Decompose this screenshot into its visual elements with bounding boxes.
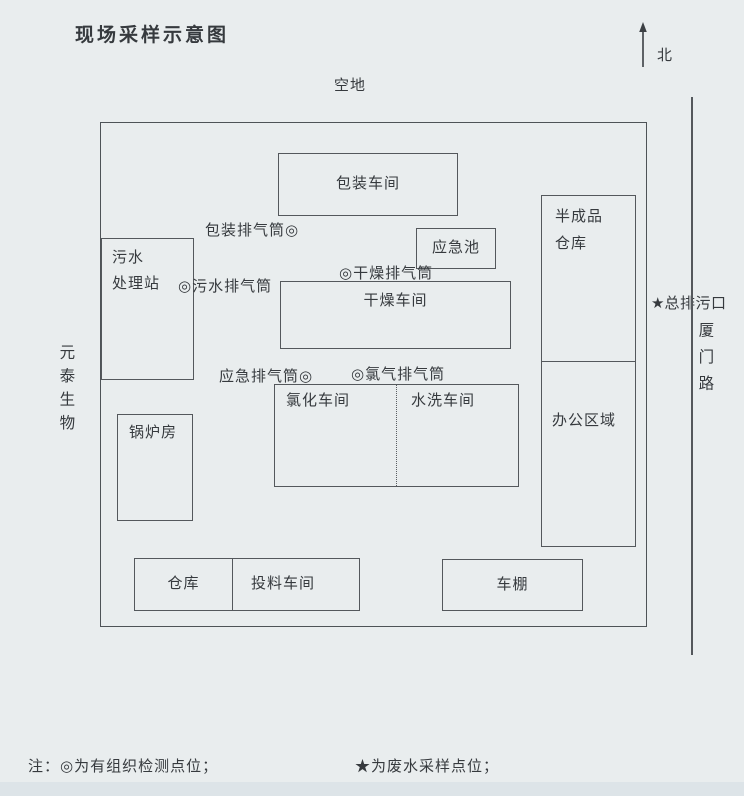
building-sewage-treatment-station: 污水 处理站 — [101, 238, 194, 380]
main-outfall-label: ★总排污口 — [651, 276, 726, 314]
north-label: 北 — [657, 44, 672, 65]
east-buildings-column: 半成品 仓库 办公区域 — [541, 195, 636, 548]
north-indicator: 北 — [636, 22, 686, 68]
building-label: 锅炉房 — [129, 424, 177, 443]
building-warehouse: 仓库 — [135, 559, 233, 610]
building-chlorination-workshop: 氯化车间 — [275, 385, 397, 486]
building-washing-workshop: 水洗车间 — [397, 385, 518, 486]
building-label: 仓库 — [167, 575, 199, 594]
page-title: 现场采样示意图 — [75, 20, 229, 47]
building-chlorination-washing-block: 氯化车间 水洗车间 — [274, 384, 519, 487]
building-boiler-room: 锅炉房 — [117, 414, 193, 521]
building-label: 投料车间 — [251, 575, 315, 594]
building-label: 应急池 — [432, 239, 480, 258]
east-road-label: 厦门路 — [695, 322, 714, 402]
building-emergency-pool: 应急池 — [416, 228, 496, 269]
building-label: 包装车间 — [336, 175, 400, 194]
building-label: 氯化车间 — [286, 392, 407, 411]
note-wastewater-points: ★为废水采样点位； — [355, 755, 499, 776]
packaging-exhaust-stack-label: 包装排气筒◎ — [205, 222, 299, 241]
building-warehouse-feeding-block: 仓库 投料车间 — [134, 558, 360, 611]
outfall-text: 总排污口 — [664, 296, 726, 312]
building-label: 办公区域 — [552, 412, 616, 431]
building-office-area: 办公区域 — [541, 361, 636, 547]
building-feeding-workshop: 投料车间 — [233, 559, 359, 610]
sewage-exhaust-stack-label: ◎污水排气筒 — [178, 278, 272, 297]
site-sampling-diagram: 现场采样示意图 北 空地 包装车间 包装排气筒◎ 应急池 半成品 仓库 办公区域 — [0, 0, 744, 796]
chlorine-exhaust-stack-label: ◎氯气排气筒 — [351, 366, 445, 385]
building-label: 半成品 仓库 — [555, 204, 603, 258]
building-label: 干燥车间 — [363, 292, 427, 311]
wastewater-sampling-star-icon: ★ — [651, 296, 664, 312]
road-edge-line — [691, 97, 693, 655]
building-packaging-workshop: 包装车间 — [278, 153, 458, 216]
building-label: 水洗车间 — [411, 392, 532, 411]
building-semi-finished-warehouse: 半成品 仓库 — [541, 195, 636, 362]
building-label: 车棚 — [496, 576, 528, 595]
building-label: 污水 处理站 — [112, 246, 160, 297]
building-carport: 车棚 — [442, 559, 583, 611]
building-drying-workshop: 干燥车间 — [280, 281, 511, 349]
note-organized-points: 注：◎为有组织检测点位； — [28, 755, 218, 776]
west-neighbor-label: 元泰生物 — [56, 344, 75, 438]
open-space-label: 空地 — [334, 77, 366, 96]
north-arrow-icon — [636, 22, 650, 68]
